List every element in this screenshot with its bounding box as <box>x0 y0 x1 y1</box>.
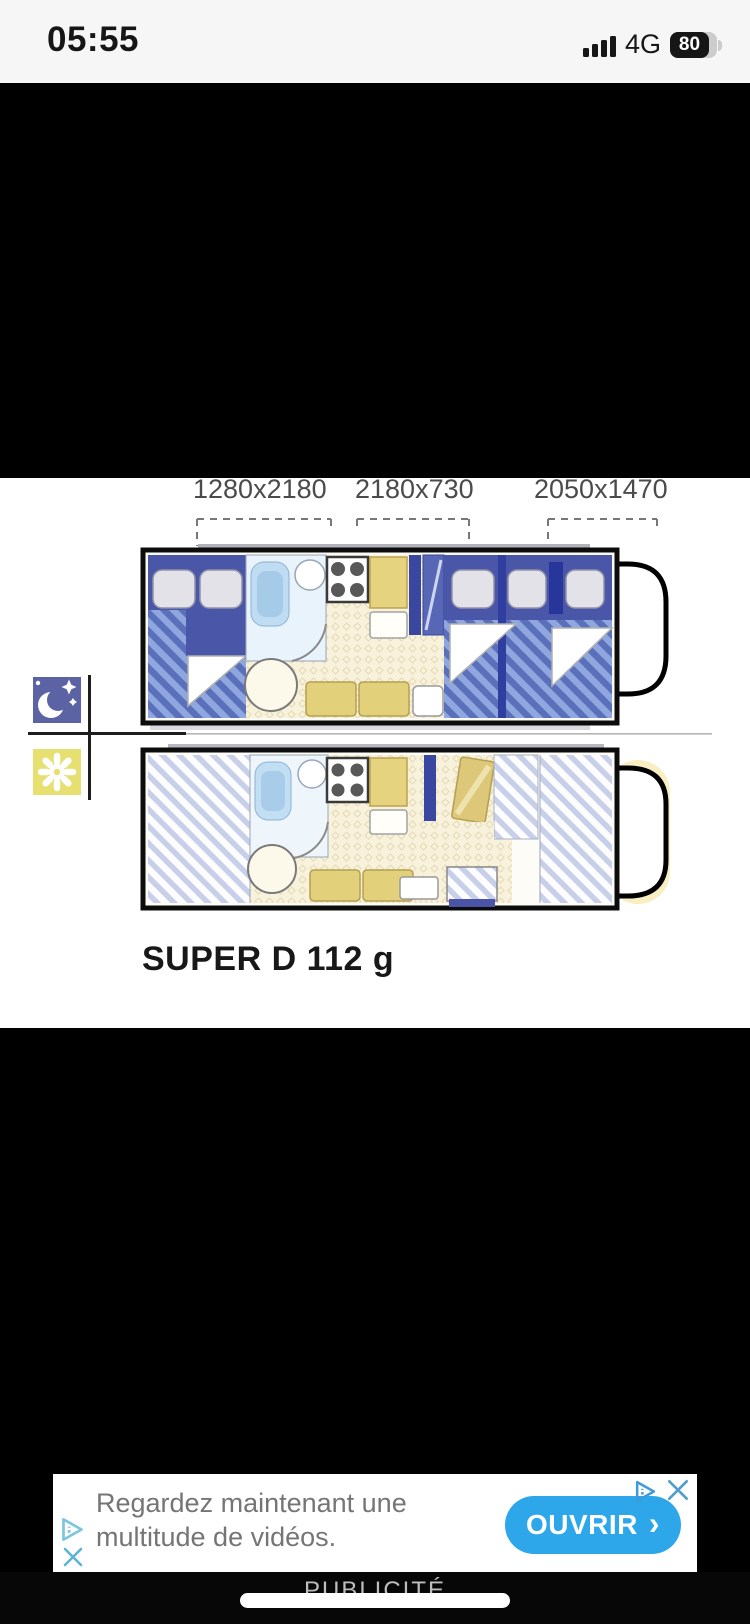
model-name: SUPER D 112 g <box>142 940 394 979</box>
bottom-strip: PUBLICITÉ <box>0 1572 750 1624</box>
letterbox-middle <box>0 1028 750 1474</box>
letterbox-top <box>0 83 750 478</box>
chevron-right-icon: › <box>649 1505 660 1542</box>
close-icon[interactable] <box>62 1546 84 1568</box>
moon-stars-icon <box>33 677 81 723</box>
phone-screen: 05:55 4G 80 <box>0 0 750 1624</box>
cellular-signal-icon <box>583 33 616 57</box>
adchoices-icon[interactable] <box>59 1516 86 1543</box>
ad-line-2: multitude de vidéos. <box>96 1520 407 1554</box>
adchoices-icon-top[interactable] <box>633 1479 658 1504</box>
cab-night <box>612 564 666 694</box>
bed-dimension-label-2: 2180x730 <box>355 474 474 505</box>
battery-tip <box>718 40 722 51</box>
open-button[interactable]: OUVRIR › <box>505 1496 681 1554</box>
ad-line-1: Regardez maintenant une <box>96 1486 407 1520</box>
network-type-label: 4G <box>625 29 661 60</box>
bed-dimension-label-1: 1280x2180 <box>193 474 327 505</box>
battery-percent: 80 <box>670 32 709 58</box>
home-indicator[interactable] <box>240 1593 510 1608</box>
dimension-leader-lines <box>197 519 657 546</box>
night-floorplan <box>143 544 666 730</box>
bed-dimension-label-3: 2050x1470 <box>534 474 668 505</box>
open-button-label: OUVRIR <box>526 1509 638 1541</box>
ad-section: Regardez maintenant une multitude de vid… <box>0 1474 750 1572</box>
status-bar: 05:55 4G 80 <box>0 0 750 83</box>
sun-icon <box>33 749 81 795</box>
status-bar-right: 4G 80 <box>583 29 717 60</box>
battery-icon: 80 <box>670 32 717 58</box>
day-floorplan <box>143 744 670 908</box>
cab-day <box>612 768 666 896</box>
ad-banner[interactable]: Regardez maintenant une multitude de vid… <box>53 1474 697 1572</box>
ad-text[interactable]: Regardez maintenant une multitude de vid… <box>96 1486 407 1554</box>
clock: 05:55 <box>47 20 139 60</box>
close-ad-icon[interactable] <box>666 1478 690 1502</box>
floorplan-panel: 1280x2180 2180x730 2050x1470 SUPER D 112… <box>0 478 750 1028</box>
